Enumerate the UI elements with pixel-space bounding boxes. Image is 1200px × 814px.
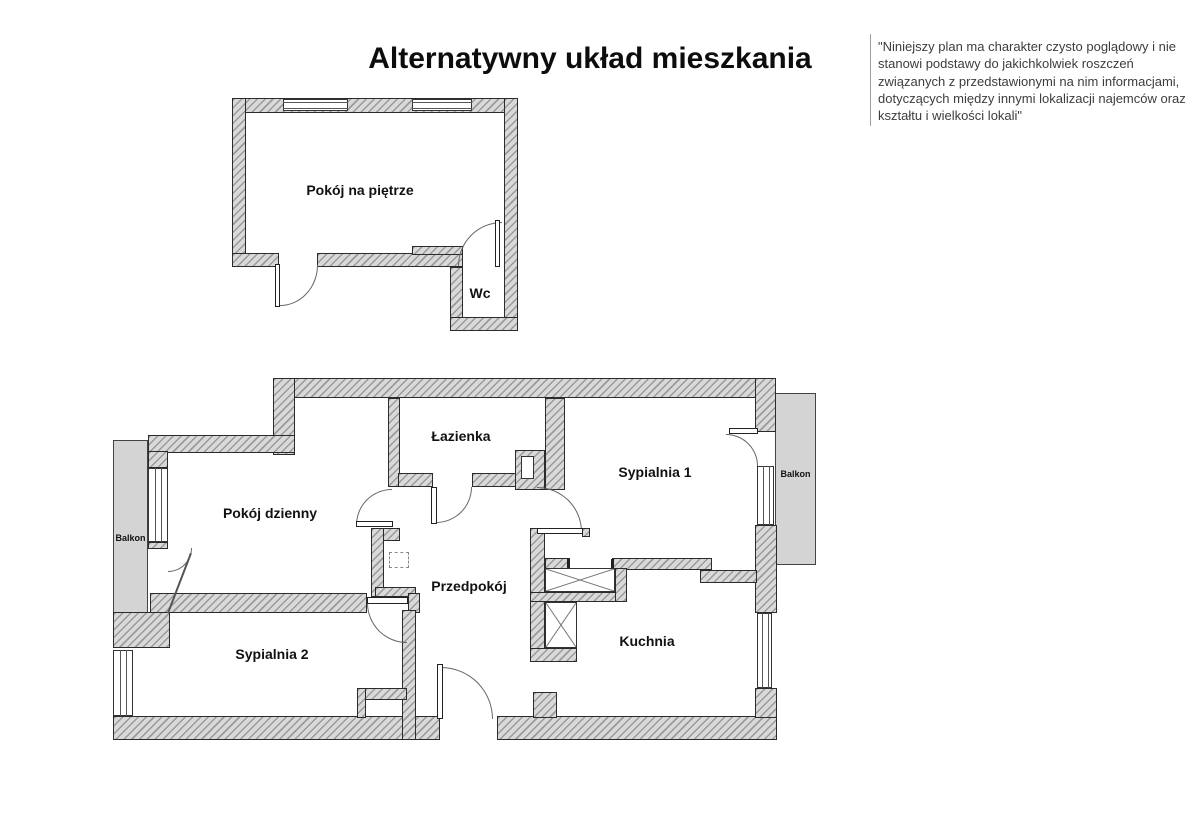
wall-segment — [533, 692, 557, 718]
door-leaf — [729, 428, 758, 434]
door-leaf — [537, 528, 583, 534]
wall-segment — [148, 435, 295, 453]
wall-segment — [755, 525, 777, 613]
wall-niche — [521, 456, 534, 479]
room-label-sypialnia-2: Sypialnia 2 — [192, 646, 352, 662]
door-arc — [726, 434, 758, 466]
shaft-symbol — [545, 568, 615, 592]
window — [757, 613, 772, 688]
window-glazing — [762, 613, 769, 688]
window-glazing — [120, 650, 127, 716]
wall-segment — [148, 542, 168, 549]
balcony-label-right: Balkon — [775, 469, 816, 479]
wall-segment — [755, 688, 777, 718]
room-label-sypialnia-1: Sypialnia 1 — [575, 464, 735, 480]
main-floor-plan: Pokój dzienny Łazienka Sypialnia 1 Sypia… — [0, 0, 1200, 814]
door-leaf — [356, 521, 393, 527]
window — [113, 650, 133, 716]
wall-segment — [150, 593, 367, 613]
window — [148, 468, 168, 542]
window-glazing — [763, 466, 770, 525]
wall-segment — [700, 570, 757, 583]
room-label-przedpokoj: Przedpokój — [389, 578, 549, 594]
dashed-marker — [389, 552, 409, 568]
wall-segment — [113, 716, 440, 740]
entrance-door-arc — [441, 667, 493, 719]
floor-plan-page: { "title": "Alternatywny układ mieszkani… — [0, 0, 1200, 814]
room-label-lazienka: Łazienka — [381, 428, 541, 444]
balcony-label-left: Balkon — [113, 533, 148, 543]
window-glazing — [155, 468, 162, 542]
wall-segment — [357, 688, 366, 718]
wall-segment — [582, 528, 590, 537]
shaft-x-icon — [546, 569, 614, 591]
wall-segment — [612, 558, 712, 570]
door-arc — [436, 487, 472, 523]
room-label-pokoj-dzienny: Pokój dzienny — [190, 505, 350, 521]
wall-segment — [530, 648, 577, 662]
door-arc — [356, 489, 392, 525]
window — [757, 466, 774, 525]
wall-segment — [113, 612, 170, 648]
door-leaf — [367, 597, 408, 604]
wall-segment — [148, 451, 168, 468]
wall-segment — [472, 473, 516, 487]
room-label-kuchnia: Kuchnia — [567, 633, 727, 649]
wall-segment — [545, 398, 565, 490]
entrance-door-leaf — [437, 664, 443, 719]
wall-segment — [398, 473, 433, 487]
wall-segment — [273, 378, 775, 398]
door-arc — [537, 487, 582, 532]
wall-segment — [497, 716, 777, 740]
wall-segment — [615, 568, 627, 602]
door-arc — [367, 603, 407, 643]
wall-segment — [755, 378, 776, 432]
balcony-right — [775, 393, 816, 565]
door-leaf — [431, 487, 437, 524]
